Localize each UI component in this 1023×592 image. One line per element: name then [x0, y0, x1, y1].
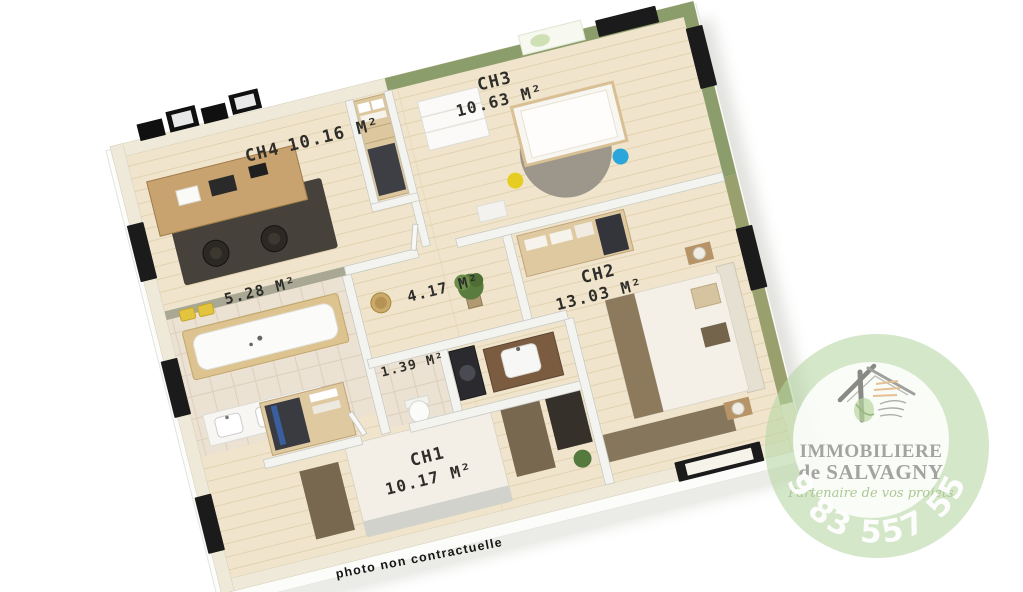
scene-canvas: CH410.16 M² CH3 10.63 M² 5.28 M² 4.17 M²… [0, 0, 1023, 592]
agency-name-line1: IMMOBILIERE [800, 441, 943, 462]
agency-name-line2: de SALVAGNY [799, 460, 944, 484]
floor-plan-scene: CH410.16 M² CH3 10.63 M² 5.28 M² 4.17 M²… [0, 0, 1023, 592]
